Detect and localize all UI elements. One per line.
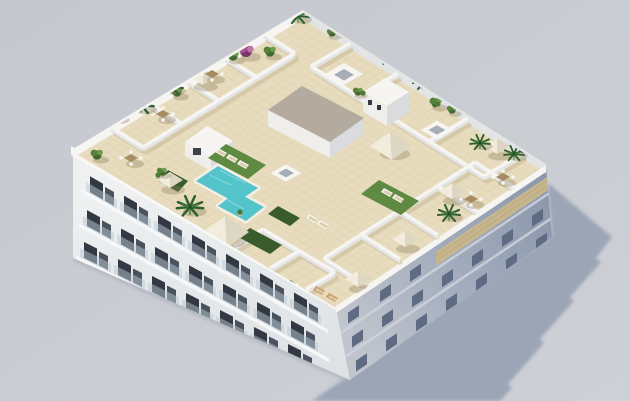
architectural-render: Aerial render of apartment building with…	[0, 0, 630, 401]
